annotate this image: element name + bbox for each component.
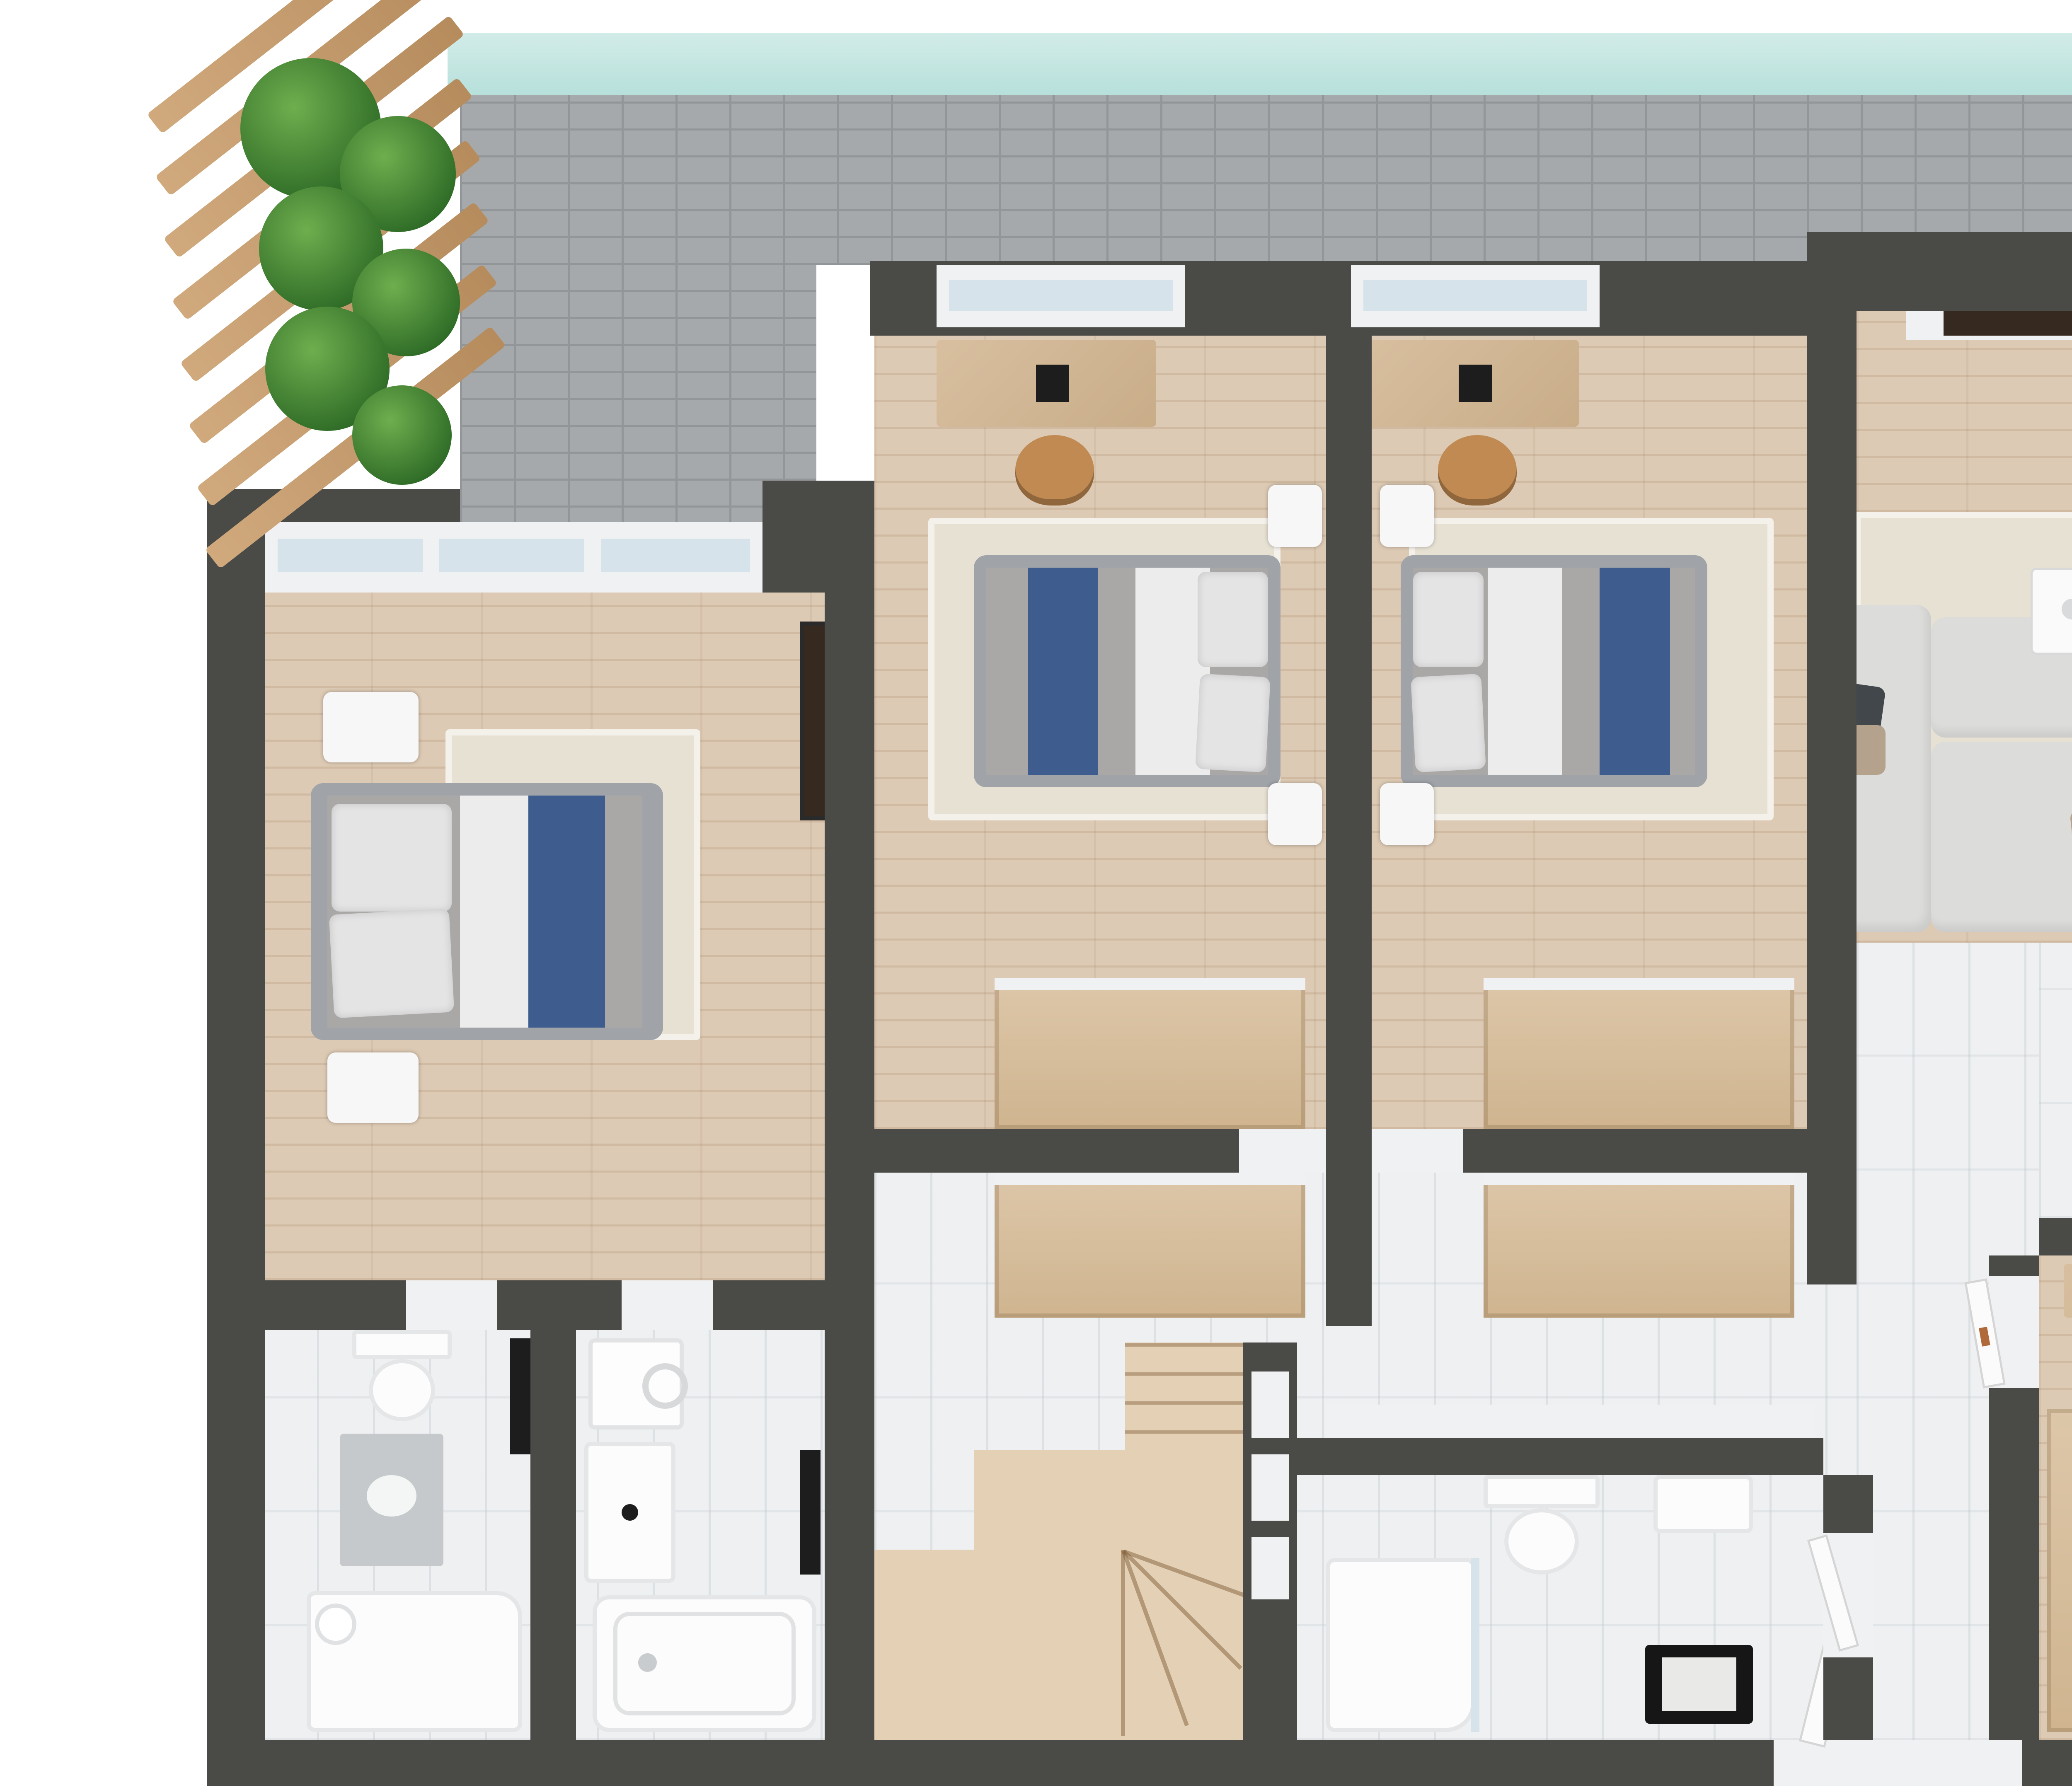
- wall-bedroom4-west-a: [1989, 1255, 2039, 1276]
- nightstand: [327, 1052, 419, 1123]
- wall-basin: [1653, 1475, 1753, 1533]
- tub-drain: [638, 1653, 657, 1672]
- wall-baths-north-b: [497, 1280, 622, 1330]
- wall-west: [207, 489, 265, 1740]
- magazine: [1036, 365, 1069, 402]
- towel-radiator: [510, 1338, 530, 1454]
- window-pane: [439, 539, 584, 572]
- floor-plan-render: [0, 0, 2072, 1790]
- wall-baths-east: [825, 1326, 874, 1740]
- wall-south-a: [207, 1740, 1774, 1786]
- wall-bathroom3-north: [1297, 1438, 1823, 1475]
- living-room-tv: [1944, 311, 2072, 336]
- bathroom-1-door-threshold: [406, 1280, 497, 1330]
- pillow: [1413, 572, 1484, 667]
- window-pane: [1363, 280, 1587, 311]
- bedroom-2-door-threshold: [1239, 1129, 1326, 1173]
- shower-glass: [1471, 1558, 1479, 1732]
- hall-closet-b: [1484, 1173, 1794, 1318]
- winder-tread-line: [1122, 1550, 1242, 1670]
- blue-runner: [528, 796, 605, 1028]
- nightstand: [1380, 485, 1434, 547]
- wall-living-north: [1857, 232, 2072, 311]
- hall-bench-ledge: [1326, 1405, 1815, 1438]
- wall-bathroom3-east-b: [1823, 1657, 1873, 1740]
- winder-tread-line: [1121, 1550, 1189, 1726]
- nightstand: [1380, 783, 1434, 845]
- window-pane: [601, 539, 750, 572]
- wall-hall-a: [874, 1129, 1239, 1173]
- wall-stairs-east: [1243, 1342, 1297, 1740]
- wall-baths-north-c: [713, 1280, 825, 1330]
- desk-chair: [1015, 435, 1094, 506]
- wall-bedroom4-north: [2039, 1218, 2072, 1255]
- entry-threshold: [1774, 1740, 2022, 1786]
- nightstand: [1268, 783, 1322, 845]
- wall-pillar: [762, 481, 874, 593]
- sheet-band: [460, 796, 528, 1028]
- magazine: [1459, 365, 1492, 402]
- washing-machine: [588, 1338, 684, 1430]
- bathroom-2-door-threshold: [622, 1280, 713, 1330]
- stair-niche: [1251, 1537, 1289, 1599]
- glass-railing-top: [448, 33, 2072, 95]
- wall-bathroom3-east-a: [1823, 1475, 1873, 1533]
- walk-in-shower: [307, 1591, 522, 1732]
- window-pane: [278, 539, 423, 572]
- bedroom-1-bed: [311, 783, 663, 1040]
- desk: [1359, 340, 1579, 427]
- wall-baths-divider: [530, 1330, 576, 1740]
- vanity-counter: [584, 1442, 675, 1583]
- towel-bench: [1645, 1645, 1753, 1724]
- bedroom-2-wardrobe: [995, 978, 1305, 1129]
- wall-hall-b: [1463, 1129, 1807, 1173]
- bedroom-2-bed: [974, 555, 1280, 787]
- washer-door: [642, 1363, 688, 1409]
- wardrobe-top-trim: [995, 978, 1305, 990]
- pillow: [1411, 674, 1486, 773]
- stair-winder: [974, 1450, 1243, 1740]
- nightstand: [323, 692, 419, 762]
- towel: [1662, 1657, 1736, 1711]
- stair-niche: [1251, 1372, 1289, 1438]
- basin: [367, 1475, 416, 1517]
- sofa-seat-module: [1931, 742, 2072, 932]
- shower-tray: [1326, 1558, 1475, 1732]
- wall-bedroom4-west-b: [1989, 1388, 2039, 1740]
- stair-niche: [1251, 1454, 1289, 1521]
- door-handle: [1979, 1327, 1990, 1347]
- nightstand: [1268, 485, 1322, 547]
- bedroom-2-window-frame: [937, 265, 1185, 327]
- wall-south-b: [2022, 1740, 2072, 1786]
- wall-living-west: [1807, 232, 1857, 1284]
- toilet-bowl: [369, 1359, 435, 1421]
- closet-top-trim: [995, 1173, 1305, 1185]
- window-pane: [949, 280, 1173, 311]
- toilet-cistern: [352, 1330, 452, 1359]
- blue-runner: [1028, 568, 1098, 775]
- pillow: [1198, 572, 1268, 667]
- bedroom-3-window-frame: [1351, 265, 1600, 327]
- coffee-table: [2031, 568, 2072, 655]
- bathtub: [593, 1595, 816, 1732]
- blue-runner: [1600, 568, 1670, 775]
- desk: [937, 340, 1156, 427]
- pillow: [329, 909, 455, 1018]
- wall-bedroom1-east: [825, 593, 874, 1326]
- pillow: [1195, 674, 1271, 773]
- faucet: [622, 1504, 638, 1521]
- wall-bedroom-divider: [1326, 336, 1372, 1326]
- vase: [2062, 599, 2072, 619]
- bedroom-3-wardrobe: [1484, 978, 1794, 1129]
- sheet-band: [1488, 568, 1562, 775]
- wardrobe-top-trim: [1484, 978, 1794, 990]
- shower-drain: [319, 1608, 352, 1641]
- kitchen-floor: [2039, 943, 2072, 1218]
- towel-radiator: [800, 1450, 821, 1575]
- pillow: [332, 804, 452, 912]
- desk-chair: [1438, 435, 1517, 506]
- bedroom-4-wardrobe: [2047, 1409, 2072, 1732]
- bedroom-3-bed: [1401, 555, 1707, 787]
- closet-top-trim: [1484, 1173, 1794, 1185]
- winder-tread-line: [1121, 1550, 1125, 1736]
- bedroom-4-dresser: [2064, 1264, 2072, 1318]
- toilet-bowl: [1504, 1508, 1579, 1575]
- bedroom-3-door-threshold: [1372, 1129, 1463, 1173]
- toilet-cistern: [1484, 1475, 1600, 1508]
- wall-baths-north-a: [261, 1280, 406, 1330]
- bedroom-1-window-frame: [265, 522, 762, 593]
- vanity-counter: [340, 1434, 443, 1566]
- planter-plant: [352, 385, 452, 485]
- hall-closet-a: [995, 1173, 1305, 1318]
